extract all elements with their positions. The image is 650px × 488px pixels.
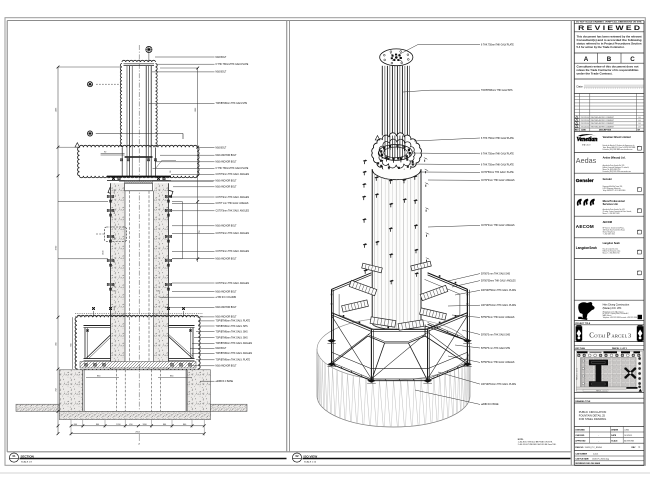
svg-text:C: C — [630, 56, 635, 63]
svg-text:M16 ANCHOR BOLT: M16 ANCHOR BOLT — [216, 365, 238, 368]
svg-text:TOP/BTM6mm THK GALV. ANGLES: TOP/BTM6mm THK GALV. ANGLES — [216, 352, 253, 355]
svg-text:REFERENCE DWG FILE NAME: REFERENCE DWG FILE NAME — [575, 462, 600, 465]
svg-text:M16 BOLT: M16 BOLT — [216, 57, 227, 59]
svg-text:50*50*50mm THK GALV. ANGLES: 50*50*50mm THK GALV. ANGLES — [481, 279, 516, 282]
svg-text:Gensler: Gensler — [603, 178, 612, 181]
svg-text:ISO VIEW: ISO VIEW — [304, 454, 318, 458]
svg-text:DRAWN: DRAWN — [611, 428, 618, 431]
svg-text:COT0* mm THK GALV. ANGLES: COT0* mm THK GALV. ANGLES — [216, 202, 249, 205]
svg-text:Grout: Grout — [112, 290, 117, 293]
svg-text:01: 01 — [12, 454, 16, 458]
svg-text:Tokyo 106-6135 T +81 3 6894 3: Tokyo 106-6135 T +81 3 6894 3660 — [603, 190, 626, 192]
svg-text:T + 852 2317 7000: T + 852 2317 7000 — [603, 233, 615, 235]
svg-text:M16 ANCHOR BOLT: M16 ANCHOR BOLT — [216, 225, 238, 228]
svg-text:23/12/2014: 23/12/2014 — [581, 123, 590, 125]
svg-text:REVISED AS PER COMMENT: REVISED AS PER COMMENT — [591, 122, 614, 125]
svg-text:100*100*10mm THK GALV. PLATE: 100*100*10mm THK GALV. PLATE — [481, 304, 517, 307]
svg-text:This document has been rev: This document has been reviewed by the r… — [577, 36, 642, 39]
svg-text:3x50: 3x50 — [114, 259, 116, 263]
svg-text:50x50: 50x50 — [103, 250, 105, 255]
svg-text:R E V I E W E D: R E V I E W E D — [578, 26, 641, 32]
svg-text:Grout: Grout — [156, 290, 161, 293]
svg-text:TOP/BTM6mm THK GALV. ANGLES: TOP/BTM6mm THK GALV. ANGLES — [216, 342, 253, 345]
svg-text:COT0*3mm THK GALV. ANGLES: COT0*3mm THK GALV. ANGLES — [216, 173, 250, 176]
svg-text:status referred to in Proj: status referred to in Project Procedures… — [577, 43, 643, 46]
svg-text:TOP/BTM6mm THK GALV.SHS: TOP/BTM6mm THK GALV.SHS — [481, 89, 513, 92]
svg-text:450: 450 — [129, 424, 132, 426]
svg-text:3x50: 3x50 — [114, 236, 116, 240]
svg-text:TOP/BTM6mm THK GALV.SHS: TOP/BTM6mm THK GALV.SHS — [216, 102, 248, 105]
svg-text:TOP/BTM6mm THK GALV. PLATE: TOP/BTM6mm THK GALV. PLATE — [216, 359, 251, 362]
svg-text:⌀2080 R.C BASE: ⌀2080 R.C BASE — [216, 380, 234, 383]
svg-text:6 THK 750mmTHK GALV.PLATE: 6 THK 750mmTHK GALV.PLATE — [481, 163, 514, 166]
svg-text:14/1/2015: 14/1/2015 — [624, 435, 632, 437]
svg-text:3x50: 3x50 — [114, 189, 116, 193]
svg-text:LUND: LUND — [624, 429, 630, 431]
svg-text:A: A — [584, 56, 589, 63]
svg-text:23/12/2014: 23/12/2014 — [581, 126, 590, 128]
svg-text:Date :: Date : — [577, 84, 585, 88]
svg-text:TOP/BTM6mm THK GALV. SHS: TOP/BTM6mm THK GALV. SHS — [216, 336, 249, 339]
svg-text:800: 800 — [74, 424, 77, 426]
svg-text:Macau Tel: (853) 2833 1113: Macau Tel: (853) 2833 1113 — [603, 169, 621, 171]
svg-text:(Macau) CO. LTD.: (Macau) CO. LTD. — [603, 307, 623, 310]
svg-text:M16 ANCHOR BOLT: M16 ANCHOR BOLT — [216, 180, 238, 183]
svg-text:600: 600 — [71, 344, 73, 347]
svg-text:relieve the Trade Contracto: relieve the Trade Contractor of its resp… — [577, 69, 640, 72]
svg-text:OTAI: OTAI — [594, 333, 606, 338]
svg-text:AECOM: AECOM — [603, 221, 612, 224]
svg-text:ARCEL: ARCEL — [611, 333, 627, 338]
svg-text:FOUNTAIN DETAIL 25: FOUNTAIN DETAIL 25 — [579, 413, 606, 417]
svg-text:Aedas: Aedas — [576, 156, 597, 165]
svg-text:M16 ANCHOR BOLT: M16 ANCHOR BOLT — [216, 316, 238, 319]
svg-text:400*200*50mm THK GALV. PLATE: 400*200*50mm THK GALV. PLATE — [481, 289, 517, 292]
svg-text:6 THK 750mmTHK GALV.PLATE: 6 THK 750mmTHK GALV.PLATE — [216, 167, 249, 170]
svg-text:M16 ANCHOR BOLT: M16 ANCHOR BOLT — [216, 257, 238, 260]
svg-text:TOP/BTM6mm THK GALV. SHS: TOP/BTM6mm THK GALV. SHS — [216, 331, 249, 334]
svg-text:50*50*5 mm THK GALV.SHS: 50*50*5 mm THK GALV.SHS — [481, 347, 510, 350]
svg-text:M16 BOLT: M16 BOLT — [216, 147, 227, 149]
svg-text:Roppongi Hills Mori Tower 35F,: Roppongi Hills Mori Tower 35F, — [603, 186, 623, 188]
svg-text:2. ALL FILLET WELDED SHOULD BE: 2. ALL FILLET WELDED SHOULD BE 5mm THK. — [518, 443, 557, 446]
svg-text:Aedas (Macau) Ltd.: Aedas (Macau) Ltd. — [603, 157, 626, 160]
svg-text:Consultant review of this: Consultant review of this document does … — [577, 66, 639, 69]
svg-text:M16 ANCHOR BOLT: M16 ANCHOR BOLT — [216, 154, 238, 157]
svg-text:DESIGNED: DESIGNED — [575, 429, 585, 431]
svg-text:Macau T + 853 2837 2628: Macau T + 853 2837 2628 — [603, 213, 620, 215]
svg-text:100*100*10mm THK GALV. PLATE: 100*100*10mm THK GALV. PLATE — [481, 383, 517, 386]
svg-text:COT0*50mm THK GALV. PLATE: COT0*50mm THK GALV. PLATE — [481, 171, 514, 174]
svg-text:TOP/BTM6mm THK GALV. SHS: TOP/BTM6mm THK GALV. SHS — [216, 325, 249, 328]
svg-text:⌀2080 R.C BASE: ⌀2080 R.C BASE — [481, 403, 499, 406]
svg-text:⌀ 550 R.C COLUMN: ⌀ 550 R.C COLUMN — [216, 296, 237, 299]
svg-text:Facsimile: (853) 2833 1990 w: Facsimile: (853) 2833 1990 www.aedas.com — [603, 171, 632, 173]
svg-text:M16 ANCHOR BOLT: M16 ANCHOR BOLT — [216, 290, 238, 293]
svg-text:23/12/2014: 23/12/2014 — [581, 117, 590, 119]
svg-text:DO NOT SCALE DRAWING. VERIFY A: DO NOT SCALE DRAWING. VERIFY ALL DIMENSI… — [576, 21, 642, 24]
svg-text:864: 864 — [96, 424, 99, 426]
svg-text:Venetian Orient Limited: Venetian Orient Limited — [603, 136, 631, 139]
svg-text:REVISED AS PER COMMENT: REVISED AS PER COMMENT — [591, 125, 614, 128]
svg-text:Rua do Campo No. 202,: Rua do Campo No. 202, — [603, 248, 619, 250]
svg-text:11628_PC_85050: 11628_PC_85050 — [585, 447, 603, 449]
svg-text:FOR STEEL DRAWING: FOR STEEL DRAWING — [579, 417, 606, 421]
svg-text:M16 BOLT: M16 BOLT — [216, 348, 227, 350]
svg-text:COT0*3mm THK GALV. ANGLES: COT0*3mm THK GALV. ANGLES — [216, 250, 250, 253]
svg-text:DATE: DATE — [611, 434, 617, 437]
svg-text:6 THK 750mmTHK GALV.PLATE: 6 THK 750mmTHK GALV.PLATE — [216, 63, 249, 66]
svg-text:DRAWING TITLE: DRAWING TITLE — [575, 400, 591, 403]
svg-text:6 THK 750mmTHK GALV.PLATE: 6 THK 750mmTHK GALV.PLATE — [481, 43, 514, 46]
svg-text:50*50*5 mm THK GALV.SHS: 50*50*5 mm THK GALV.SHS — [481, 272, 510, 275]
svg-text:SECTION: SECTION — [21, 454, 34, 458]
svg-text:APPROVED: APPROVED — [575, 440, 586, 443]
svg-text:Langdon Seah: Langdon Seah — [603, 242, 621, 245]
svg-text:6 THK 750mmTHK GALV.PLATE: 6 THK 750mmTHK GALV.PLATE — [481, 153, 514, 156]
svg-text:PARCEL 1, LOT 2: PARCEL 1, LOT 2 — [612, 347, 627, 350]
svg-text:COT0*3mm THK GALV. ANGLES: COT0*3mm THK GALV. ANGLES — [216, 210, 250, 213]
svg-text:11628_PC_85050.dwg: 11628_PC_85050.dwg — [592, 458, 609, 460]
svg-text:SCALE: SCALE — [611, 440, 618, 443]
svg-text:800: 800 — [183, 424, 186, 426]
svg-text:Macau T + 853 2833 1710: Macau T + 853 2833 1710 — [603, 252, 620, 254]
svg-text:B: B — [607, 56, 612, 63]
svg-text:LangdonSeah: LangdonSeah — [576, 246, 597, 250]
svg-text:CHECKED: CHECKED — [575, 435, 585, 437]
svg-text:Telephone: +853 2870 3389 Fac: Telephone: +853 2870 3389 Facsimile: +85… — [603, 317, 638, 319]
svg-text:6 THK 750mmTHK GALV.PLATE: 6 THK 750mmTHK GALV.PLATE — [481, 137, 514, 140]
svg-text:SCALE 1:10: SCALE 1:10 — [304, 461, 317, 464]
svg-text:PUBLIC CIRCULATION: PUBLIC CIRCULATION — [579, 410, 607, 414]
svg-text:3x50: 3x50 — [114, 283, 116, 287]
svg-text:C: C — [639, 446, 641, 449]
svg-text:50*50*5 mm THK GALV.SHS: 50*50*5 mm THK GALV.SHS — [481, 333, 510, 336]
svg-text:under the Trade Contract.: under the Trade Contract. — [577, 73, 613, 76]
svg-text:864: 864 — [163, 424, 166, 426]
svg-text:M16 ANCHOR BOLT: M16 ANCHOR BOLT — [216, 161, 238, 164]
svg-text:PROJECT TITLE: PROJECT TITLE — [575, 323, 590, 325]
svg-text:50*50*5mm THK GALV. ANGLES: 50*50*5mm THK GALV. ANGLES — [481, 316, 515, 319]
svg-text:COT0*3mm THK GALV. ANGLES: COT0*3mm THK GALV. ANGLES — [216, 196, 250, 199]
svg-text:Consultant(s) and is accord: Consultant(s) and is accorded the follow… — [577, 39, 643, 42]
svg-text:M16 BOLT: M16 BOLT — [216, 72, 227, 74]
svg-text:3x50: 3x50 — [114, 210, 116, 214]
svg-text:P: P — [607, 331, 611, 339]
svg-text:Gensler: Gensler — [576, 178, 594, 184]
svg-text:CAD NUMBER: CAD NUMBER — [575, 453, 587, 456]
svg-text:SCALE 1:8: SCALE 1:8 — [21, 461, 33, 464]
svg-text:02: 02 — [295, 454, 299, 458]
svg-text:M16 ANCHOR BOLT: M16 ANCHOR BOLT — [216, 186, 238, 189]
svg-text:REVISED AS PER COMMENT: REVISED AS PER COMMENT — [591, 116, 614, 119]
svg-text:COT0*3mm THK GALV. ANGLES: COT0*3mm THK GALV. ANGLES — [216, 232, 250, 235]
svg-text:AECOM: AECOM — [576, 224, 594, 229]
svg-text:COT0*3mm THK GALV. ANGLES: COT0*3mm THK GALV. ANGLES — [216, 282, 250, 285]
svg-text:DWG NO: DWG NO — [575, 447, 584, 449]
svg-text:23/12/2014: 23/12/2014 — [581, 120, 590, 122]
svg-text:1200: 1200 — [116, 424, 120, 426]
svg-text:REVISED AS PER COMMENT: REVISED AS PER COMMENT — [591, 119, 614, 122]
svg-text:3x50: 3x50 — [114, 306, 116, 310]
svg-text:1200: 1200 — [143, 424, 147, 426]
svg-text:Edificio Vai Keong 14 andar,: Edificio Vai Keong 14 andar, — [603, 250, 622, 252]
svg-text:50*50*5mm THK GALV. ANGLES: 50*50*5mm THK GALV. ANGLES — [481, 361, 515, 364]
svg-text:4-1124: 4-1124 — [593, 454, 598, 456]
svg-text:KEY PLAN: KEY PLAN — [575, 347, 585, 350]
svg-text:Services Ltd.: Services Ltd. — [603, 203, 619, 206]
svg-text:TOP/BTM6mm THK GALV. PLATE: TOP/BTM6mm THK GALV. PLATE — [216, 320, 251, 323]
svg-text:Venetian: Venetian — [577, 137, 598, 143]
svg-text:M16 ANCHOR BOLT: M16 ANCHOR BOLT — [216, 306, 238, 309]
svg-text:5.4 for action by the Tra: 5.4 for action by the Trade Contractor. — [577, 46, 625, 49]
svg-text:COT0*3mm THK GALV. ANGLES: COT0*3mm THK GALV. ANGLES — [481, 179, 515, 182]
svg-text:COT0*3mm THK GALV. ANGLES: COT0*3mm THK GALV. ANGLES — [481, 224, 515, 227]
svg-text:CAD FILE NAME: CAD FILE NAME — [575, 457, 589, 460]
svg-text:AS SHOWN: AS SHOWN — [624, 440, 634, 443]
